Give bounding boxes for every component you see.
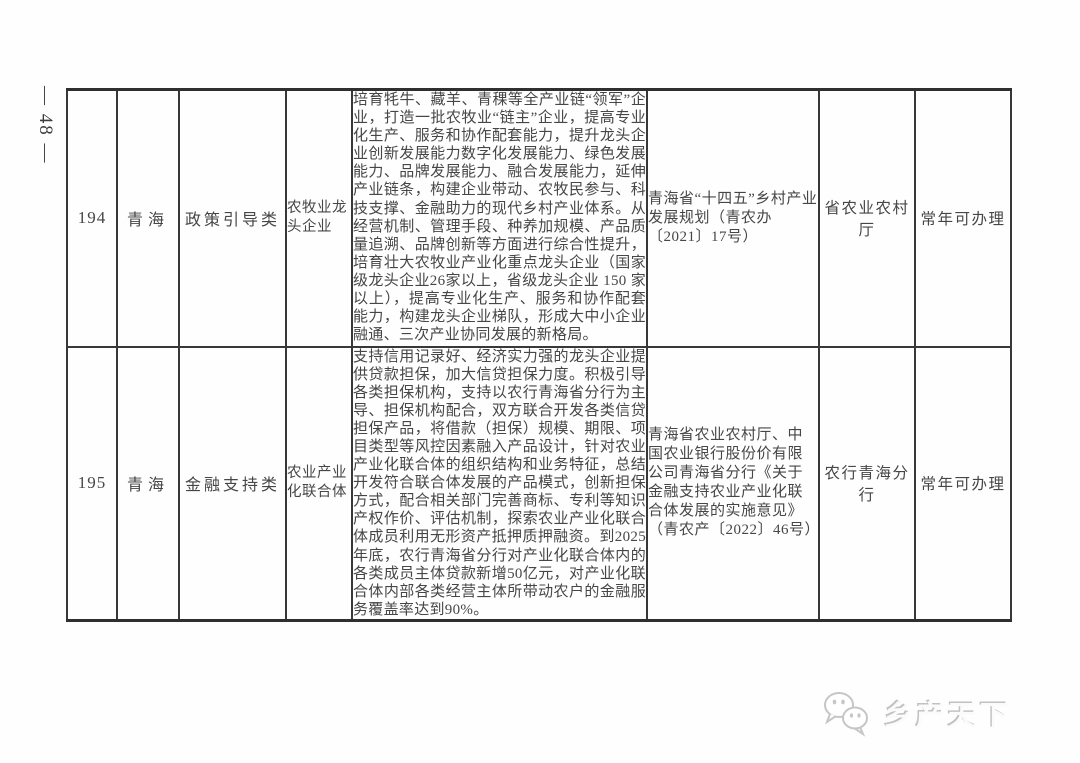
cell-category: 金融支持类 — [179, 347, 286, 621]
watermark-logo: 乡产天下 — [820, 690, 1012, 738]
cell-subject: 农牧业龙头企业 — [286, 90, 352, 347]
cell-availability: 常年可办理 — [915, 90, 1011, 347]
page-number: — 48 — — [34, 86, 56, 165]
cell-policy-doc: 青海省“十四五”乡村产业发展规划（青农办〔2021〕17号） — [647, 90, 819, 347]
cell-subject: 农业产业化联合体 — [286, 347, 352, 621]
document-page: — 48 — 194 青海 政策引导类 农牧业龙头企业 培育牦牛、藏羊、青稞等全… — [0, 0, 1080, 763]
watermark-text: 乡产天下 — [884, 694, 1012, 734]
policy-table: 194 青海 政策引导类 农牧业龙头企业 培育牦牛、藏羊、青稞等全产业链“领军”… — [66, 88, 1012, 622]
cell-category: 政策引导类 — [179, 90, 286, 347]
cell-availability: 常年可办理 — [915, 347, 1011, 621]
cell-index: 195 — [67, 347, 117, 621]
cell-index: 194 — [67, 90, 117, 347]
cell-department: 农行青海分行 — [819, 347, 915, 621]
cell-policy-doc: 青海省农业农村厅、中国农业银行股份价有限公司青海省分行《关于金融支持农业产业化联… — [647, 347, 819, 621]
cell-description: 支持信用记录好、经济实力强的龙头企业提供贷款担保，加大信贷担保力度。积极引导各类… — [352, 347, 647, 621]
cell-department: 省农业农村厅 — [819, 90, 915, 347]
table-row: 195 青海 金融支持类 农业产业化联合体 支持信用记录好、经济实力强的龙头企业… — [67, 347, 1011, 621]
chat-bubbles-icon — [820, 690, 874, 738]
cell-description: 培育牦牛、藏羊、青稞等全产业链“领军”企业，打造一批农牧业“链主”企业，提高专业… — [352, 90, 647, 347]
table-row: 194 青海 政策引导类 农牧业龙头企业 培育牦牛、藏羊、青稞等全产业链“领军”… — [67, 90, 1011, 347]
cell-province: 青海 — [117, 90, 179, 347]
cell-province: 青海 — [117, 347, 179, 621]
